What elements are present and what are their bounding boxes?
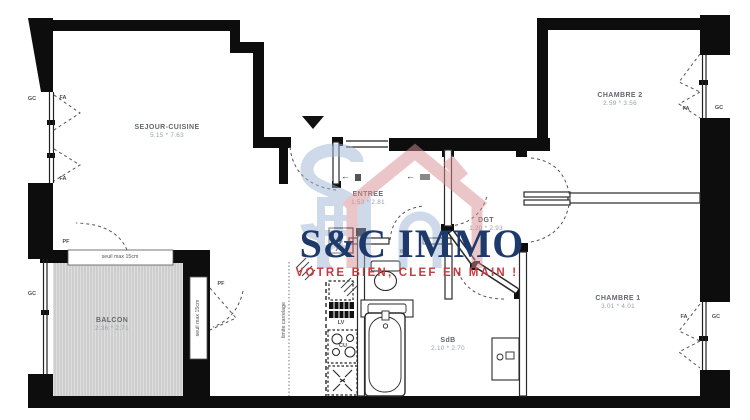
room-label-balcon: BALCON 2.36 * 2.71 [95,317,129,332]
washing-machine [492,338,519,380]
label-lv-dishwasher: LV [338,320,345,326]
entrance-arrow-icon [302,116,324,129]
label-fa-sejour-top: FA [59,95,66,101]
room-label-chambre-2: CHAMBRE 2 2.59 * 3.56 [597,92,642,107]
label-gc-sejour: GC [28,96,36,102]
floor-plan-drawing [0,0,750,420]
label-pf-balcon-right: PF [217,281,224,287]
room-label-sejour-cuisine: SEJOUR-CUISINE 5.15 * 7.63 [134,124,199,139]
small-block [355,174,361,181]
direction-arrow-icon: ← [341,172,350,181]
label-fa-chambre2: FA [682,106,689,112]
label-fa-sejour-bottom: FA [59,176,66,182]
label-gc-balcon: GC [28,291,36,297]
label-seuil-horizontal: seuil max 15cm [102,254,139,260]
label-seuil-vertical: seuil max 15cm [195,300,201,337]
agency-brand-text: S&C IMMO [300,224,525,264]
label-fa-chambre1: FA [680,314,687,320]
bathroom-fixtures [361,261,519,396]
room-label-chambre-1: CHAMBRE 1 3.01 * 4.01 [595,295,640,310]
room-label-sdb: SdB 2.10 * 2.70 [431,337,465,352]
room-label-entree: ENTREE 1.53 * 2.81 [351,191,385,206]
fridge-arrows-icon [333,370,352,391]
label-cu-cooktop: CU [339,343,347,349]
label-gc-chambre1: GC [712,314,720,320]
direction-arrow-icon: ← [406,172,415,181]
label-gc-chambre2: GC [715,105,723,111]
agency-tagline-text: VOTRE BIEN, CLEF EN MAIN ! [296,267,519,279]
label-limite-carrelage: limite carrelage [281,302,287,338]
floor-plan-page: SEJOUR-CUISINE 5.15 * 7.63 CHAMBRE 2 2.5… [0,0,750,420]
vent-rect [420,174,430,180]
label-pf-balcon-left: PF [62,239,69,245]
